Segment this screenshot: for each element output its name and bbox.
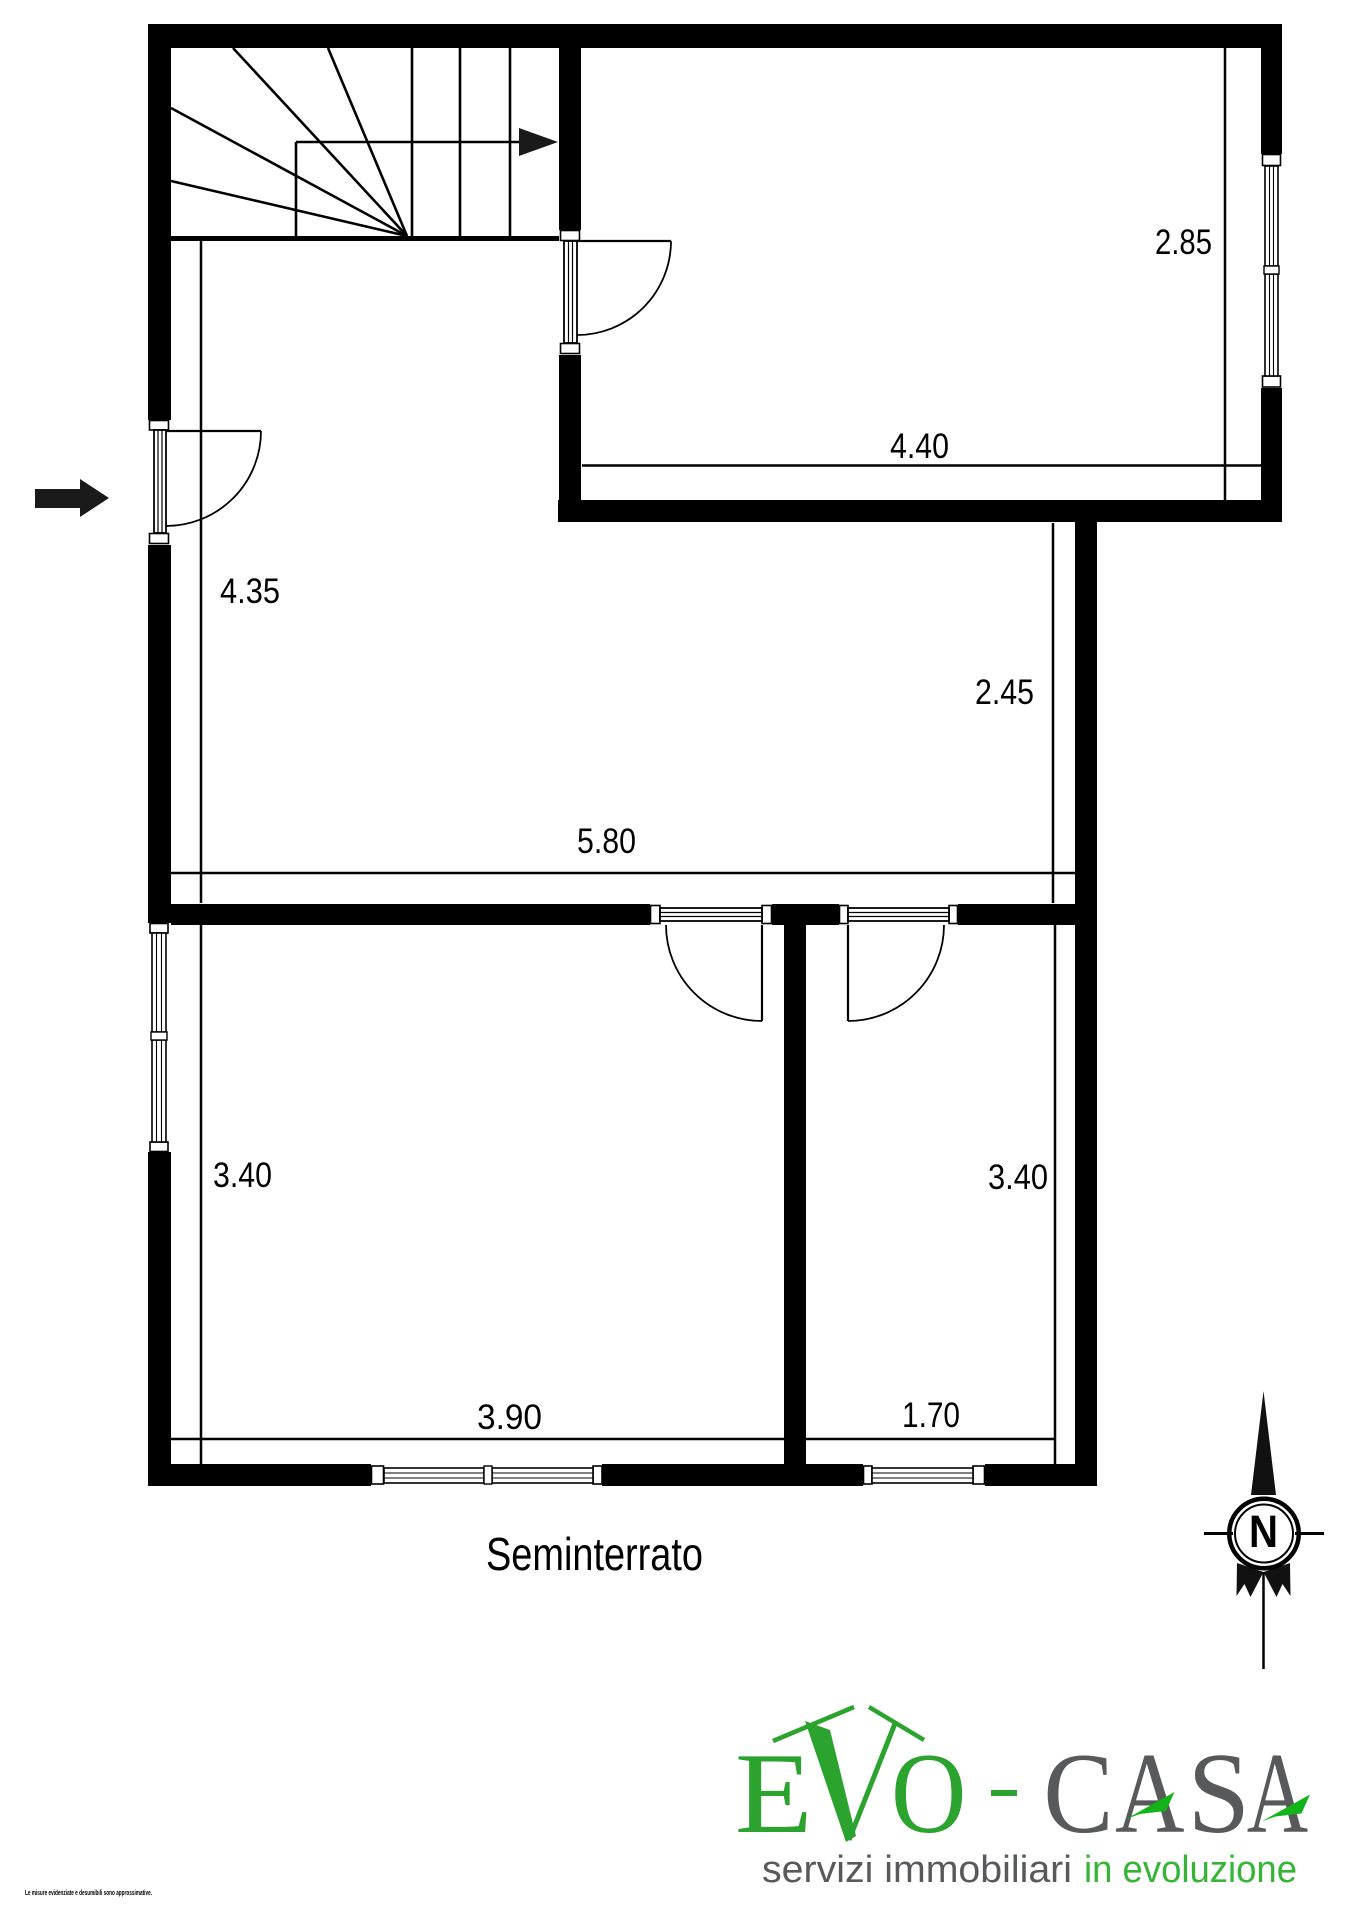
svg-text:S: S <box>1188 1728 1251 1857</box>
svg-text:C: C <box>1043 1728 1113 1857</box>
svg-text:A: A <box>1247 1728 1308 1857</box>
svg-text:2.45: 2.45 <box>975 673 1034 712</box>
svg-text:E: E <box>735 1729 813 1857</box>
svg-text:N: N <box>1249 1506 1278 1557</box>
svg-text:servizi immobiliari: servizi immobiliari <box>762 1849 1072 1891</box>
svg-text:O: O <box>891 1729 966 1857</box>
svg-text:Le misure evidenziate e desumi: Le misure evidenziate e desumibili sono … <box>25 1890 152 1897</box>
svg-text:4.40: 4.40 <box>890 427 949 466</box>
svg-text:in evoluzione: in evoluzione <box>1084 1849 1297 1891</box>
svg-text:Seminterrato: Seminterrato <box>486 1528 703 1580</box>
svg-text:A: A <box>1115 1730 1185 1858</box>
svg-text:5.80: 5.80 <box>577 822 636 861</box>
svg-text:3.40: 3.40 <box>213 1156 272 1195</box>
svg-text:4.35: 4.35 <box>220 572 280 611</box>
svg-text:1.70: 1.70 <box>902 1396 960 1435</box>
svg-text:3.90: 3.90 <box>477 1398 542 1437</box>
svg-text:2.85: 2.85 <box>1155 223 1212 262</box>
svg-text:3.40: 3.40 <box>988 1158 1048 1197</box>
